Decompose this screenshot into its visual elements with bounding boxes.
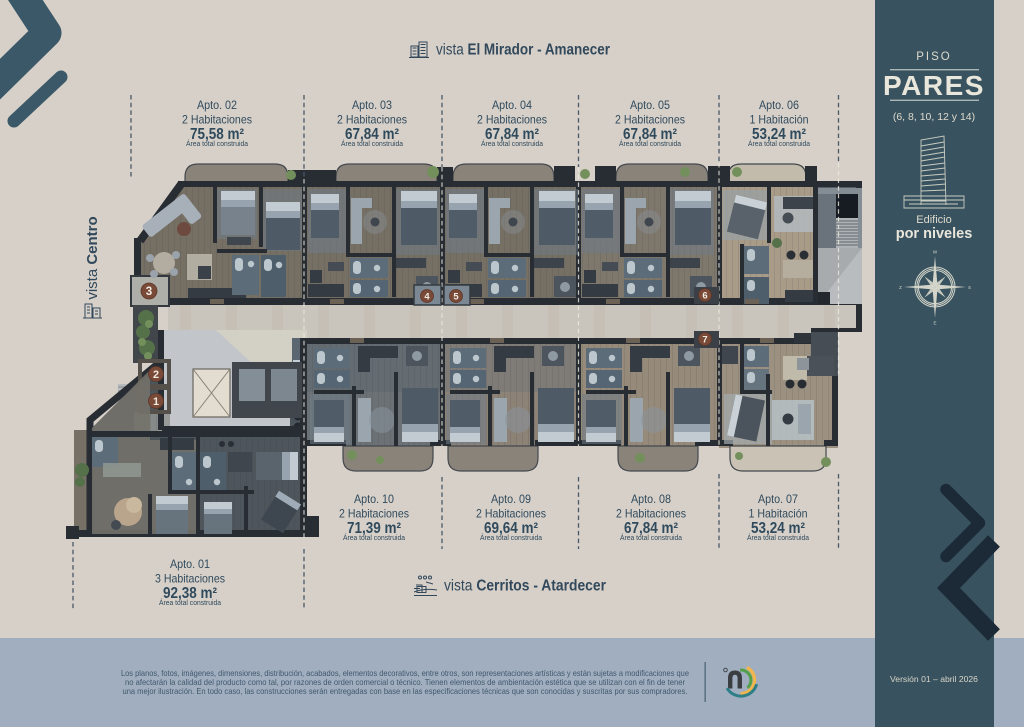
svg-text:Apto. 07: Apto. 07	[758, 492, 798, 506]
svg-text:Área total construida: Área total construida	[619, 139, 682, 148]
svg-text:2 Habitaciones: 2 Habitaciones	[616, 507, 686, 521]
svg-text:(6, 8, 10, 12 y 14): (6, 8, 10, 12 y 14)	[893, 111, 975, 123]
svg-text:3: 3	[146, 285, 153, 298]
svg-text:Área total construida: Área total construida	[341, 139, 404, 148]
svg-text:1 Habitación: 1 Habitación	[750, 113, 809, 127]
svg-text:6: 6	[702, 289, 707, 300]
svg-text:Área total construida: Área total construida	[748, 139, 811, 148]
svg-text:2 Habitaciones: 2 Habitaciones	[182, 113, 252, 127]
svg-text:Apto. 02: Apto. 02	[197, 98, 237, 112]
svg-text:Apto. 08: Apto. 08	[631, 492, 671, 506]
svg-text:2 Habitaciones: 2 Habitaciones	[476, 507, 546, 521]
svg-text:Área total construida: Área total construida	[747, 533, 810, 542]
svg-text:vista Centro: vista Centro	[84, 216, 101, 299]
svg-text:2 Habitaciones: 2 Habitaciones	[339, 507, 409, 521]
svg-text:E: E	[933, 321, 936, 326]
svg-text:Área total construida: Área total construida	[620, 533, 683, 542]
svg-text:2: 2	[153, 369, 159, 381]
svg-text:Apto. 06: Apto. 06	[759, 98, 799, 112]
svg-text:por niveles: por niveles	[896, 226, 973, 242]
svg-text:1 Habitación: 1 Habitación	[749, 507, 808, 521]
svg-text:Área total construida: Área total construida	[186, 139, 249, 148]
svg-text:PISO: PISO	[916, 51, 951, 63]
svg-text:Área total construida: Área total construida	[343, 533, 406, 542]
svg-text:7: 7	[702, 333, 707, 344]
svg-text:Área total construida: Área total construida	[480, 533, 543, 542]
svg-text:Apto. 04: Apto. 04	[492, 98, 532, 112]
svg-text:5: 5	[453, 290, 458, 301]
svg-text:Área total construida: Área total construida	[481, 139, 544, 148]
svg-text:Apto. 09: Apto. 09	[491, 492, 531, 506]
svg-text:vista El Mirador - Amanecer: vista El Mirador - Amanecer	[436, 42, 610, 59]
svg-text:2 Habitaciones: 2 Habitaciones	[337, 113, 407, 127]
svg-text:PARES: PARES	[883, 70, 985, 101]
svg-text:Z: Z	[899, 285, 902, 290]
svg-text:1: 1	[153, 396, 159, 408]
svg-text:3 Habitaciones: 3 Habitaciones	[155, 572, 225, 586]
svg-text:S: S	[968, 285, 971, 290]
svg-text:una mejor ilustración. En todo: una mejor ilustración. En todo caso, las…	[123, 686, 688, 696]
svg-text:Edificio: Edificio	[916, 214, 951, 226]
svg-text:Apto. 05: Apto. 05	[630, 98, 670, 112]
svg-text:Apto. 10: Apto. 10	[354, 492, 394, 506]
svg-text:Área total construida: Área total construida	[159, 598, 222, 607]
svg-text:2 Habitaciones: 2 Habitaciones	[615, 113, 685, 127]
svg-text:4: 4	[424, 290, 430, 301]
svg-text:Apto. 03: Apto. 03	[352, 98, 392, 112]
svg-text:2 Habitaciones: 2 Habitaciones	[477, 113, 547, 127]
svg-text:Versión 01 – abril 2026: Versión 01 – abril 2026	[890, 674, 978, 684]
svg-text:Apto. 01: Apto. 01	[170, 557, 210, 571]
svg-text:vista Cerritos - Atardecer: vista Cerritos - Atardecer	[444, 578, 606, 595]
